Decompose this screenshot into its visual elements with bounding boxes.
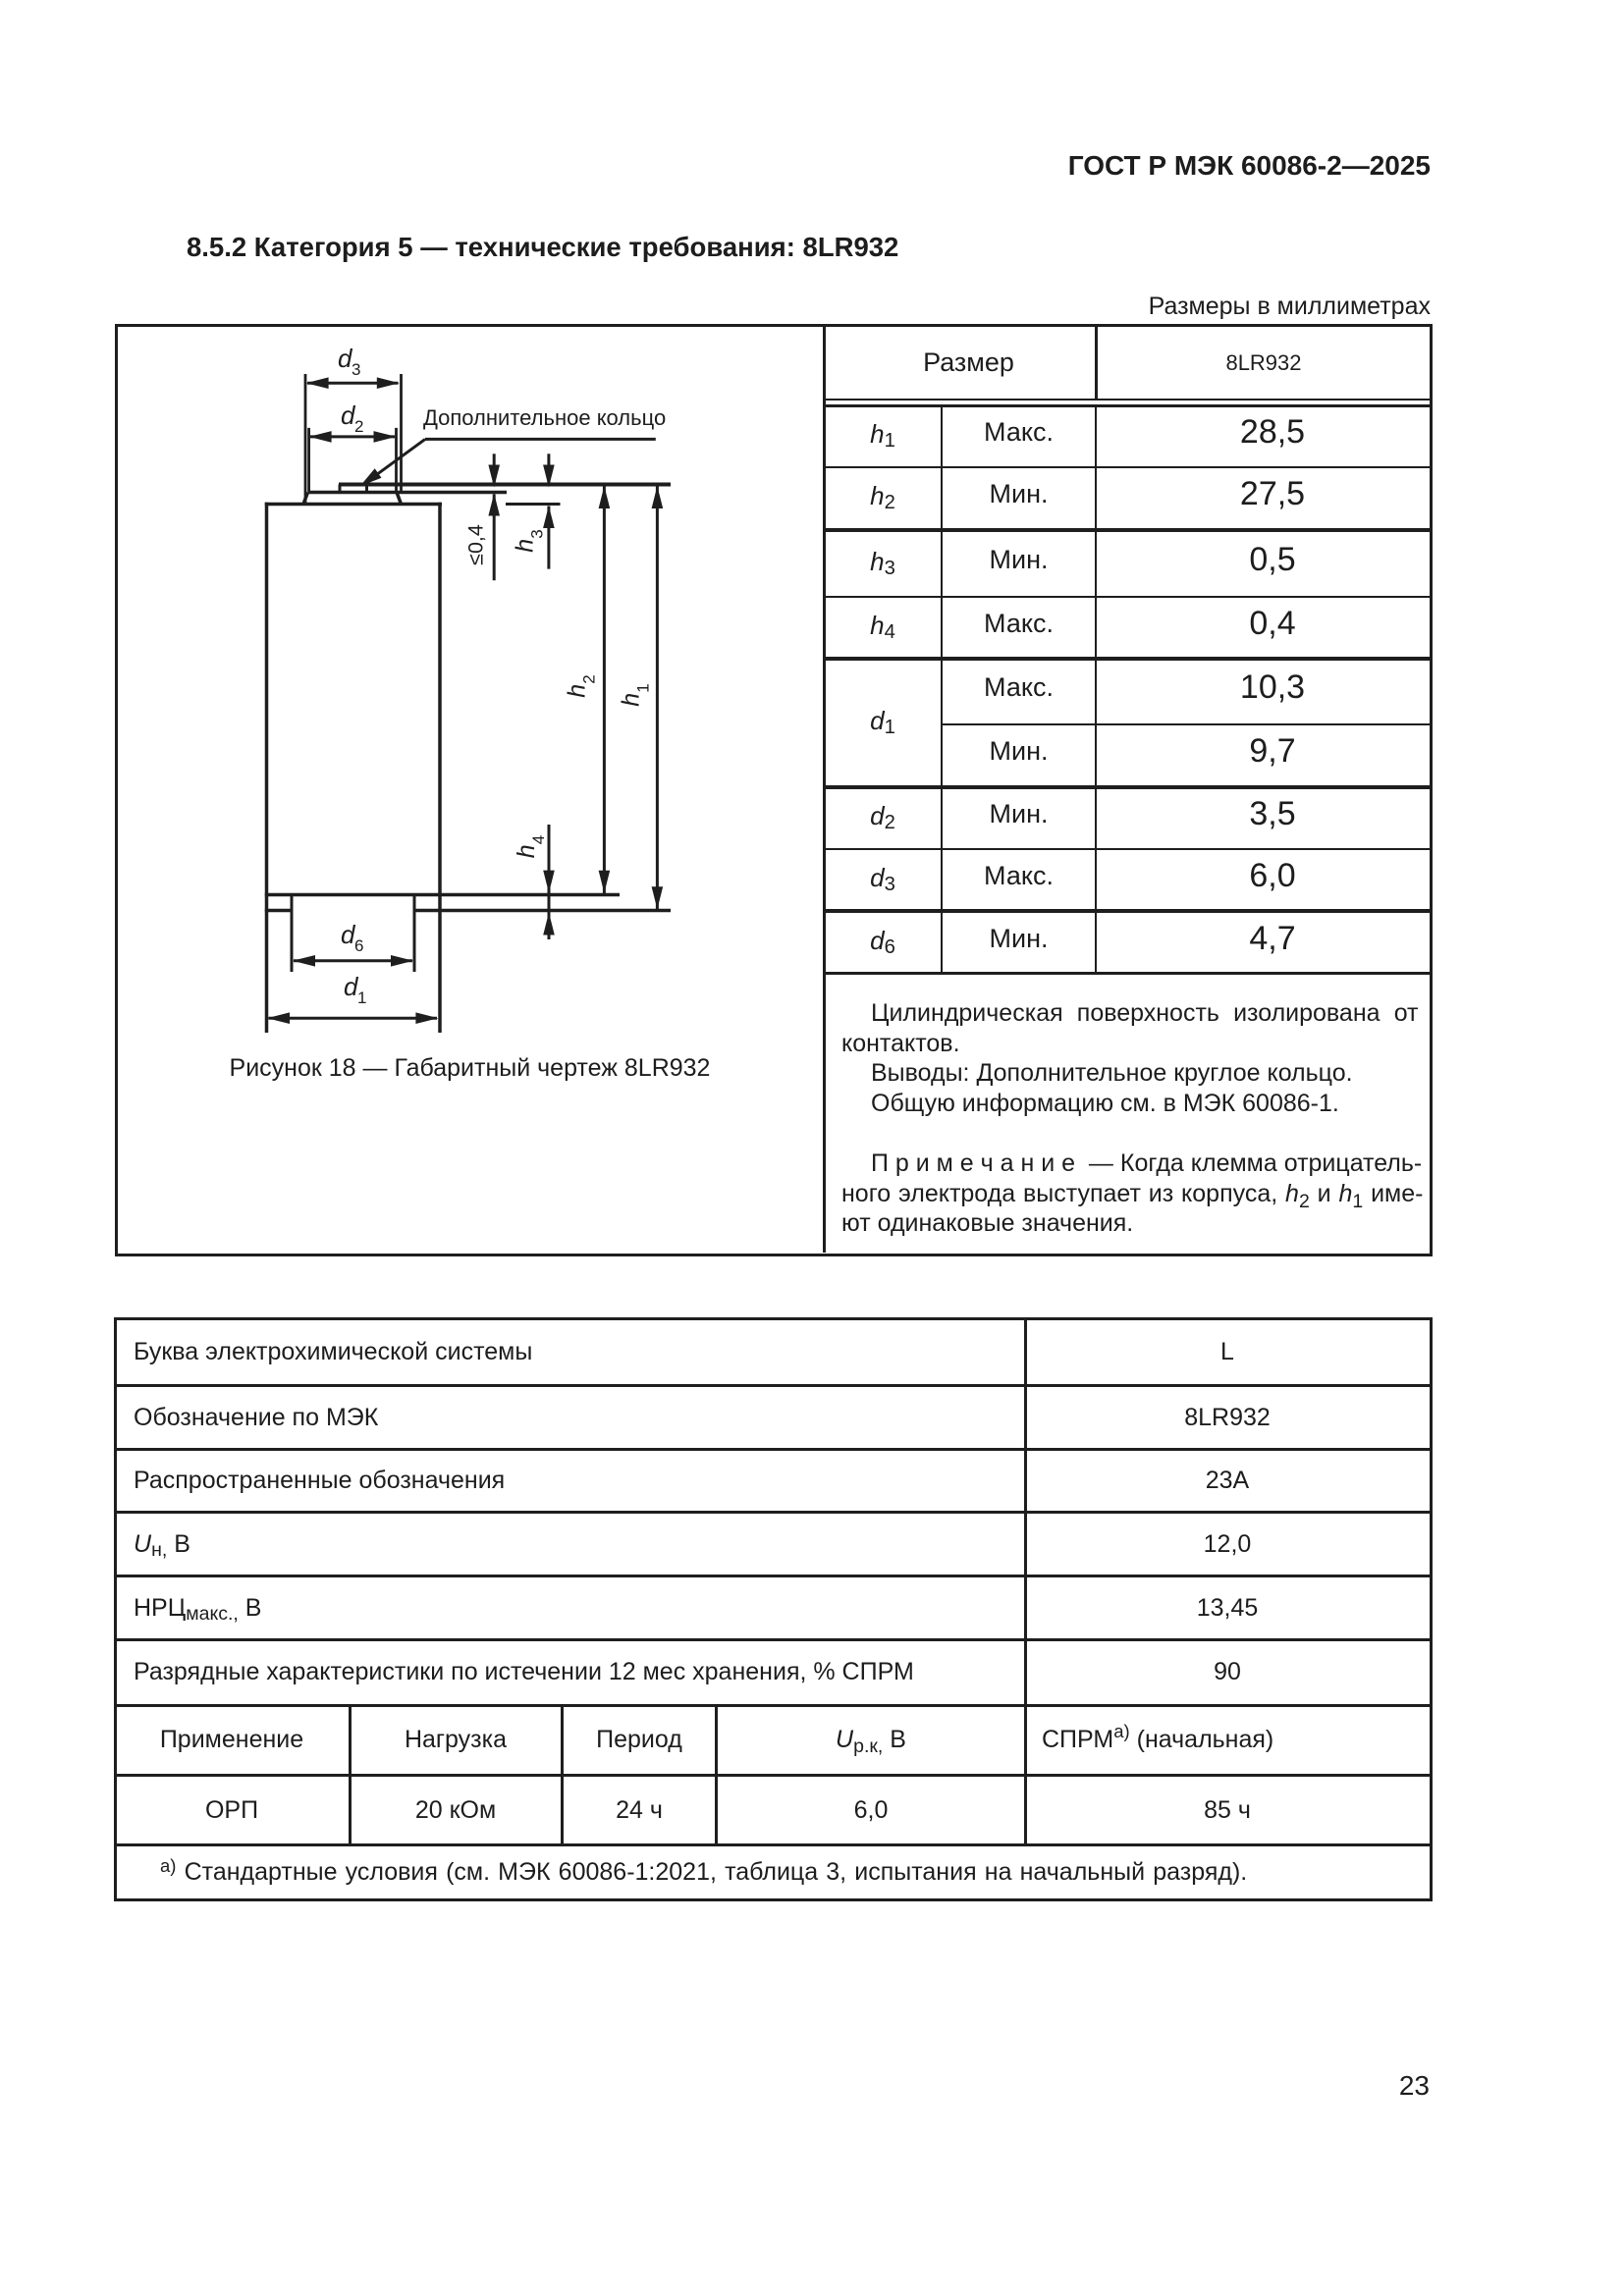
- svg-text:3: 3: [352, 360, 360, 379]
- svg-text:h4: h4: [513, 835, 548, 858]
- svg-text:6: 6: [354, 936, 363, 955]
- svg-text:2: 2: [354, 417, 363, 436]
- svg-text:h2: h2: [564, 674, 599, 697]
- svg-text:h1: h1: [618, 683, 653, 706]
- svg-text:Дополнительное кольцо: Дополнительное кольцо: [423, 405, 666, 430]
- svg-text:≤0,4: ≤0,4: [464, 524, 488, 565]
- svg-text:h3: h3: [512, 529, 547, 552]
- svg-text:1: 1: [357, 988, 366, 1007]
